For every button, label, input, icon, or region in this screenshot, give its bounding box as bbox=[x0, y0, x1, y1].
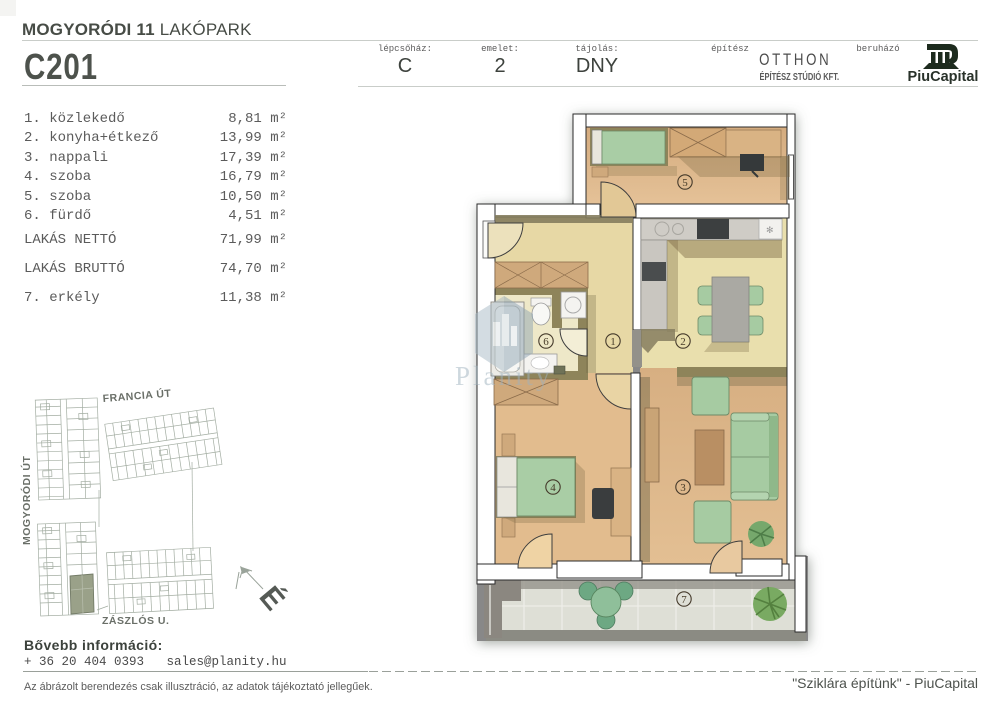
svg-text:É: É bbox=[253, 580, 292, 617]
svg-text:2: 2 bbox=[680, 336, 686, 348]
svg-text:✻: ✻ bbox=[766, 225, 774, 235]
svg-text:MOGYORÓDI ÚT: MOGYORÓDI ÚT bbox=[20, 455, 33, 545]
svg-text:FRANCIA ÚT: FRANCIA ÚT bbox=[102, 387, 172, 405]
svg-text:4: 4 bbox=[550, 482, 556, 494]
svg-text:7: 7 bbox=[681, 594, 687, 606]
svg-text:Planity: Planity bbox=[455, 361, 553, 391]
svg-text:5: 5 bbox=[682, 177, 688, 189]
svg-text:ZÁSZLÓS U.: ZÁSZLÓS U. bbox=[102, 614, 169, 627]
svg-text:3: 3 bbox=[680, 482, 686, 494]
svg-text:6: 6 bbox=[543, 336, 549, 348]
svg-text:1: 1 bbox=[610, 336, 616, 348]
